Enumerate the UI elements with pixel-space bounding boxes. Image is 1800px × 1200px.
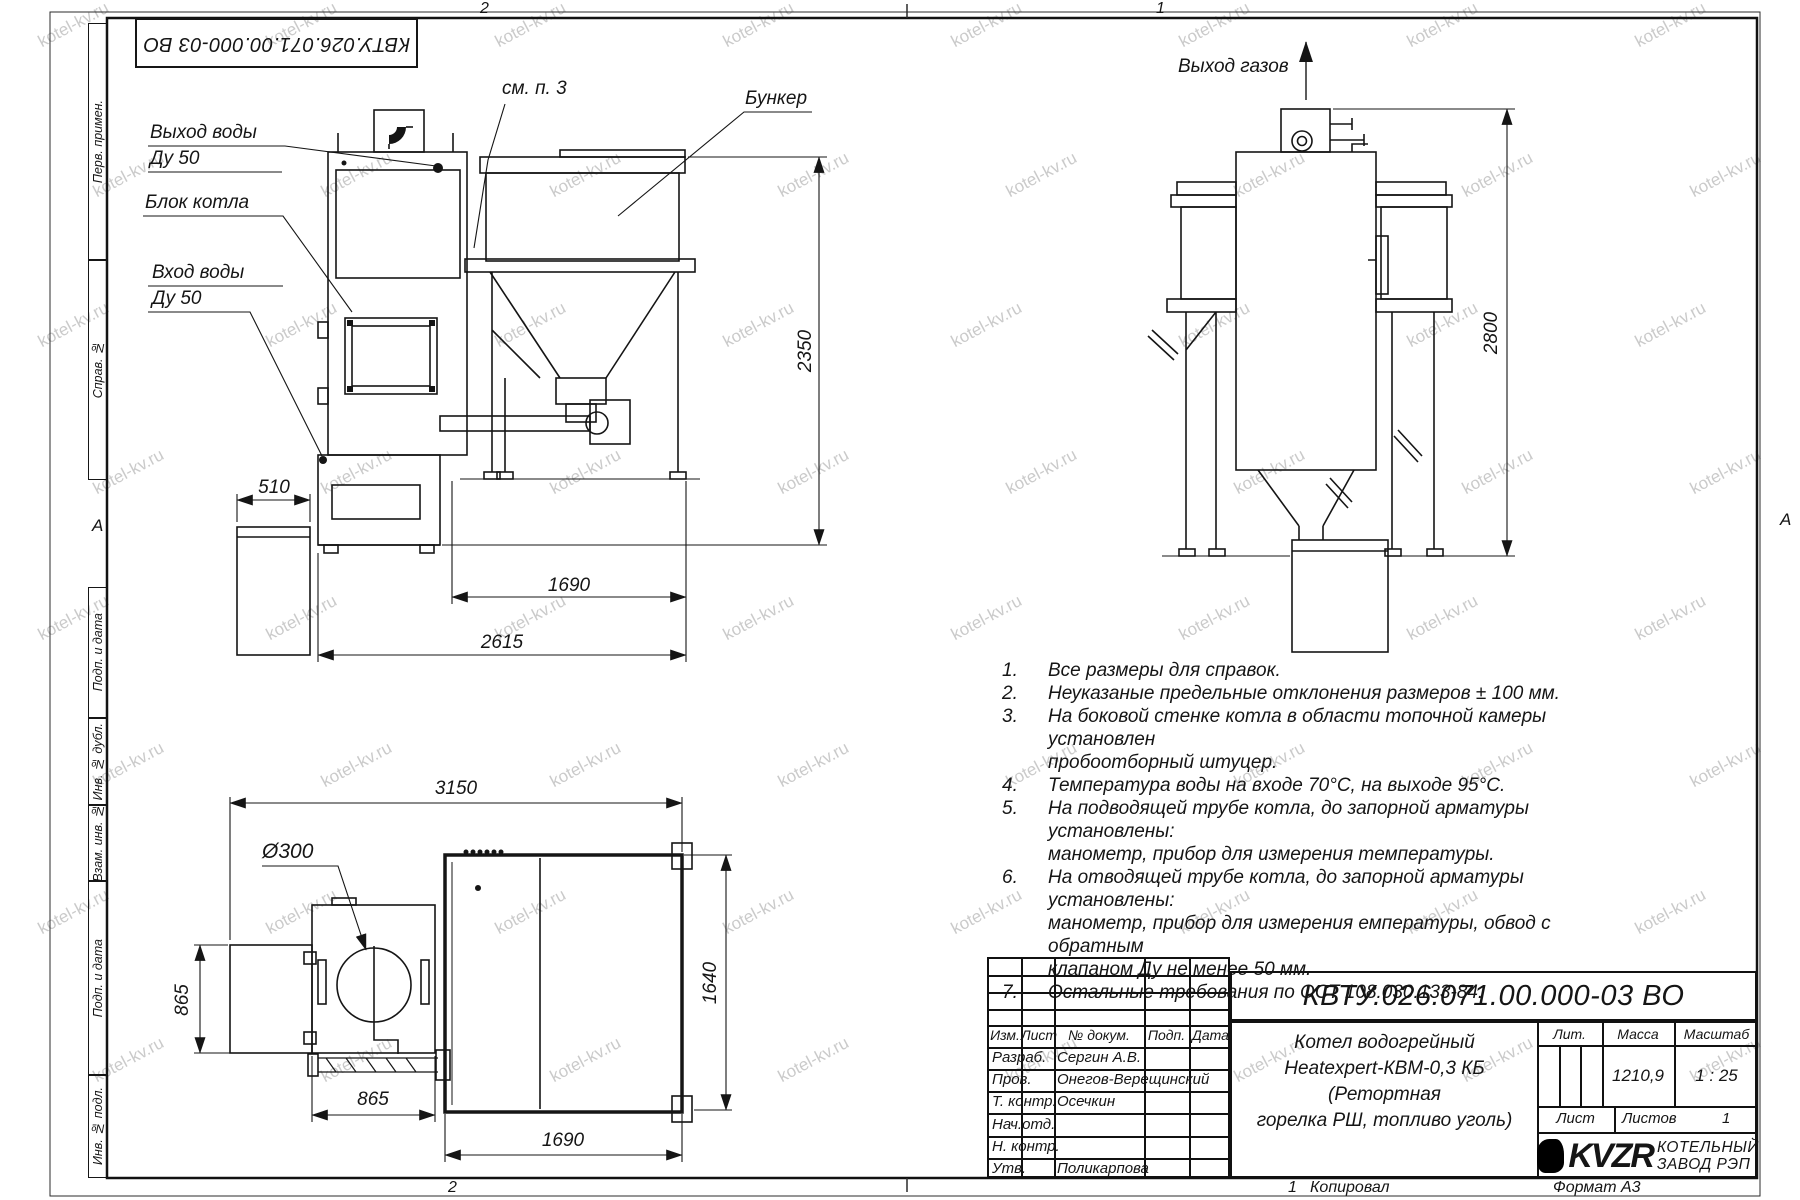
dim-510: 510 — [242, 477, 306, 499]
zone-top-left: 2 — [480, 0, 489, 18]
label-boiler-block: Блок котла — [145, 192, 249, 214]
top-doc-number-box: КВТУ.026.071.00.000-03 ВО — [135, 18, 418, 68]
row-name: Поликарпова — [1057, 1160, 1149, 1177]
row-name: Сергин А.В. — [1057, 1049, 1141, 1066]
zone-top-right: 1 — [1156, 0, 1165, 18]
section-letter-right: А — [1780, 510, 1791, 530]
sheets-label: Листов — [1622, 1110, 1677, 1127]
note-item: 2.Неуказаные предельные отклонения разме… — [1002, 682, 1622, 705]
drawing-sheet: kotel-kv.rukotel-kv.rukotel-kv.rukotel-k… — [0, 0, 1800, 1200]
sheet-label: Лист — [1537, 1110, 1614, 1127]
label-water-outlet-dn: Ду 50 — [150, 148, 200, 170]
dim-865-bottom: 865 — [341, 1089, 405, 1111]
kvzr-logo-text: KVZR — [1568, 1139, 1653, 1173]
titleblock-doc-number: КВТУ.026.071.00.000-03 ВО — [1303, 980, 1685, 1013]
label-bunker: Бункер — [745, 88, 807, 110]
section-letter-left: А — [92, 516, 103, 536]
dim-2615: 2615 — [470, 632, 534, 654]
side-label: Перв. примен. — [91, 100, 105, 183]
format-label: Формат А3 — [1553, 1179, 1641, 1197]
side-label: Инв. № подл. — [91, 1087, 105, 1165]
side-box-sprav-no: Справ. № — [88, 260, 107, 480]
label-water-inlet: Вход воды — [152, 262, 244, 284]
dim-2800: 2800 — [1481, 301, 1503, 365]
plan-view-linework — [230, 843, 692, 1122]
side-label: Взам. инв. № — [91, 804, 105, 882]
note-item: 1.Все размеры для справок. — [1002, 659, 1622, 682]
note-item: 4.Температура воды на входе 70°С, на вых… — [1002, 774, 1622, 797]
row-role: Н. контр. — [992, 1138, 1060, 1155]
copied-label: Копировал — [1310, 1179, 1390, 1197]
row-name: Осечкин — [1057, 1093, 1115, 1110]
row-role: Разраб. — [992, 1049, 1046, 1066]
side-box-perv-primen: Перв. примен. — [88, 23, 107, 260]
dim-3150: 3150 — [424, 778, 488, 800]
side-box-inv-dubl: Инв. № дубл. — [88, 718, 107, 805]
col-dokum: № докум. — [1054, 1027, 1144, 1043]
row-role: Т. контр. — [992, 1093, 1057, 1110]
notes-block: 1.Все размеры для справок. 2.Неуказаные … — [1002, 659, 1622, 1004]
zone-bottom-left: 2 — [448, 1179, 457, 1197]
right-view-linework — [1148, 42, 1462, 652]
row-role: Пров. — [992, 1071, 1032, 1088]
dim-2350: 2350 — [795, 319, 817, 383]
label-gas-outlet: Выход газов — [1178, 56, 1289, 78]
col-podp: Подп. — [1144, 1027, 1189, 1043]
scale-value: 1 : 25 — [1674, 1066, 1759, 1086]
front-view-dims — [237, 157, 827, 662]
zone-bottom-mid: 1 — [1288, 1179, 1297, 1197]
dim-diameter-300: Ø300 — [262, 840, 313, 864]
sheets-value: 1 — [1722, 1110, 1730, 1127]
col-list: Лист — [1021, 1027, 1054, 1043]
company-line1: КОТЕЛЬНЫЙ — [1657, 1139, 1759, 1156]
dim-1690-plan: 1690 — [531, 1130, 595, 1152]
kvzr-logo-icon — [1537, 1139, 1564, 1173]
titleblock-main: Котел водогрейный Heatexpert-КВМ-0,3 КБ … — [1230, 1021, 1757, 1178]
col-izm: Изм. — [989, 1027, 1021, 1043]
scale-label: Масштаб — [1674, 1026, 1759, 1042]
label-see-note-3: см. п. 3 — [502, 78, 567, 100]
side-label: Подп. и дата — [91, 613, 105, 691]
product-name: Котел водогрейный Heatexpert-КВМ-0,3 КБ … — [1232, 1030, 1537, 1134]
front-view-linework — [237, 110, 700, 655]
row-name: Онегов-Верещинский — [1057, 1071, 1209, 1088]
titleblock-doc-number-box: КВТУ.026.071.00.000-03 ВО — [1230, 971, 1757, 1021]
side-box-inv-podl: Инв. № подл. — [88, 1075, 107, 1178]
side-label: Справ. № — [91, 341, 105, 398]
top-doc-number: КВТУ.026.071.00.000-03 ВО — [143, 32, 410, 55]
side-label: Инв. № дубл. — [91, 723, 105, 800]
company-row: KVZR КОТЕЛЬНЫЙ ЗАВОД РЭП — [1537, 1132, 1759, 1180]
side-box-podp-data-2: Подп. и дата — [88, 881, 107, 1075]
mass-value: 1210,9 — [1602, 1066, 1674, 1086]
row-role: Нач.отд. — [992, 1116, 1055, 1133]
note-item: 3.На боковой стенке котла в области топо… — [1002, 705, 1622, 774]
dim-1690-front: 1690 — [537, 575, 601, 597]
mass-label: Масса — [1602, 1026, 1674, 1042]
label-water-outlet: Выход воды — [150, 122, 257, 144]
dim-1640: 1640 — [700, 951, 722, 1015]
company-name: КОТЕЛЬНЫЙ ЗАВОД РЭП — [1657, 1139, 1759, 1173]
note-item: 5.На подводящей трубе котла, до запорной… — [1002, 797, 1622, 866]
titleblock-signatures: Изм. Лист № докум. Подп. Дата Разраб. Се… — [987, 957, 1230, 1178]
side-box-vzam-inv: Взам. инв. № — [88, 805, 107, 881]
lit-label: Лит. — [1537, 1026, 1602, 1042]
label-water-inlet-dn: Ду 50 — [152, 288, 202, 310]
side-box-podp-data-1: Подп. и дата — [88, 587, 107, 718]
company-line2: ЗАВОД РЭП — [1657, 1156, 1759, 1173]
side-label: Подп. и дата — [91, 939, 105, 1017]
dim-865-left: 865 — [172, 968, 194, 1032]
col-data: Дата — [1189, 1027, 1232, 1043]
row-role: Утв. — [992, 1160, 1026, 1177]
